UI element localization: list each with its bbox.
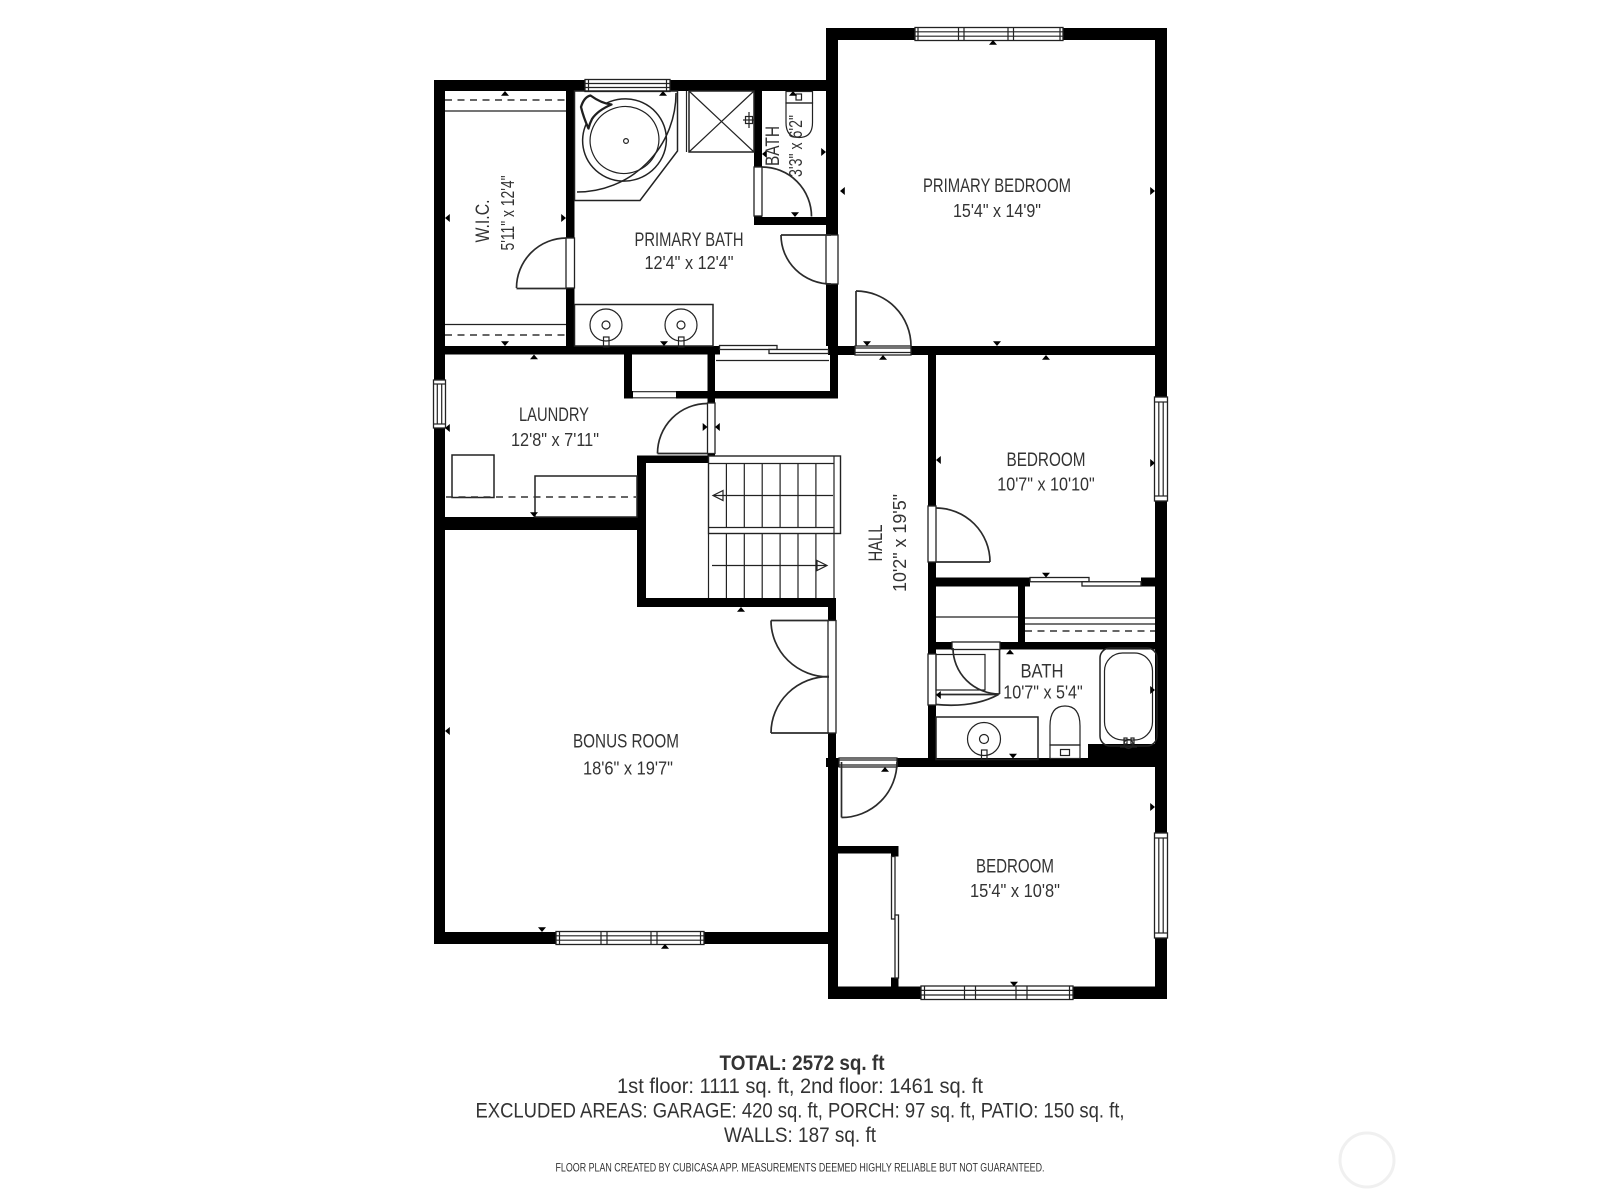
svg-text:PRIMARY BEDROOM: PRIMARY BEDROOM (923, 176, 1071, 197)
svg-text:BATH: BATH (763, 126, 784, 166)
svg-text:10'2" x 19'5": 10'2" x 19'5" (890, 494, 910, 592)
svg-text:PRIMARY BATH: PRIMARY BATH (635, 230, 744, 251)
svg-text:W.I.C.: W.I.C. (473, 200, 494, 243)
svg-text:10'7" x 5'4": 10'7" x 5'4" (1003, 683, 1083, 703)
svg-text:15'4" x 14'9": 15'4" x 14'9" (953, 201, 1041, 221)
svg-text:12'4" x 12'4": 12'4" x 12'4" (645, 253, 734, 273)
svg-text:BEDROOM: BEDROOM (1007, 450, 1086, 471)
svg-text:5'11" x 12'4": 5'11" x 12'4" (498, 176, 518, 251)
svg-text:TOTAL: 2572 sq. ft: TOTAL: 2572 sq. ft (720, 1052, 885, 1075)
svg-text:FLOOR PLAN CREATED BY CUBICASA: FLOOR PLAN CREATED BY CUBICASA APP. MEAS… (556, 1163, 1045, 1175)
svg-text:HALL: HALL (866, 525, 887, 562)
svg-text:18'6" x 19'7": 18'6" x 19'7" (583, 759, 673, 779)
svg-text:WALLS: 187 sq. ft: WALLS: 187 sq. ft (724, 1124, 876, 1147)
svg-text:BEDROOM: BEDROOM (976, 857, 1054, 878)
svg-text:EXCLUDED AREAS: GARAGE: 420 sq: EXCLUDED AREAS: GARAGE: 420 sq. ft, PORC… (476, 1100, 1125, 1123)
svg-text:1st floor: 1111 sq. ft, 2nd fl: 1st floor: 1111 sq. ft, 2nd floor: 1461 … (617, 1075, 983, 1098)
svg-text:BONUS ROOM: BONUS ROOM (573, 732, 679, 753)
svg-text:12'8" x 7'11": 12'8" x 7'11" (511, 430, 599, 450)
svg-text:3'3" x 6'2": 3'3" x 6'2" (786, 115, 806, 177)
svg-text:BATH: BATH (1021, 662, 1064, 683)
svg-text:LAUNDRY: LAUNDRY (519, 405, 589, 426)
svg-text:15'4" x 10'8": 15'4" x 10'8" (970, 881, 1060, 901)
svg-text:10'7" x 10'10": 10'7" x 10'10" (997, 475, 1095, 495)
